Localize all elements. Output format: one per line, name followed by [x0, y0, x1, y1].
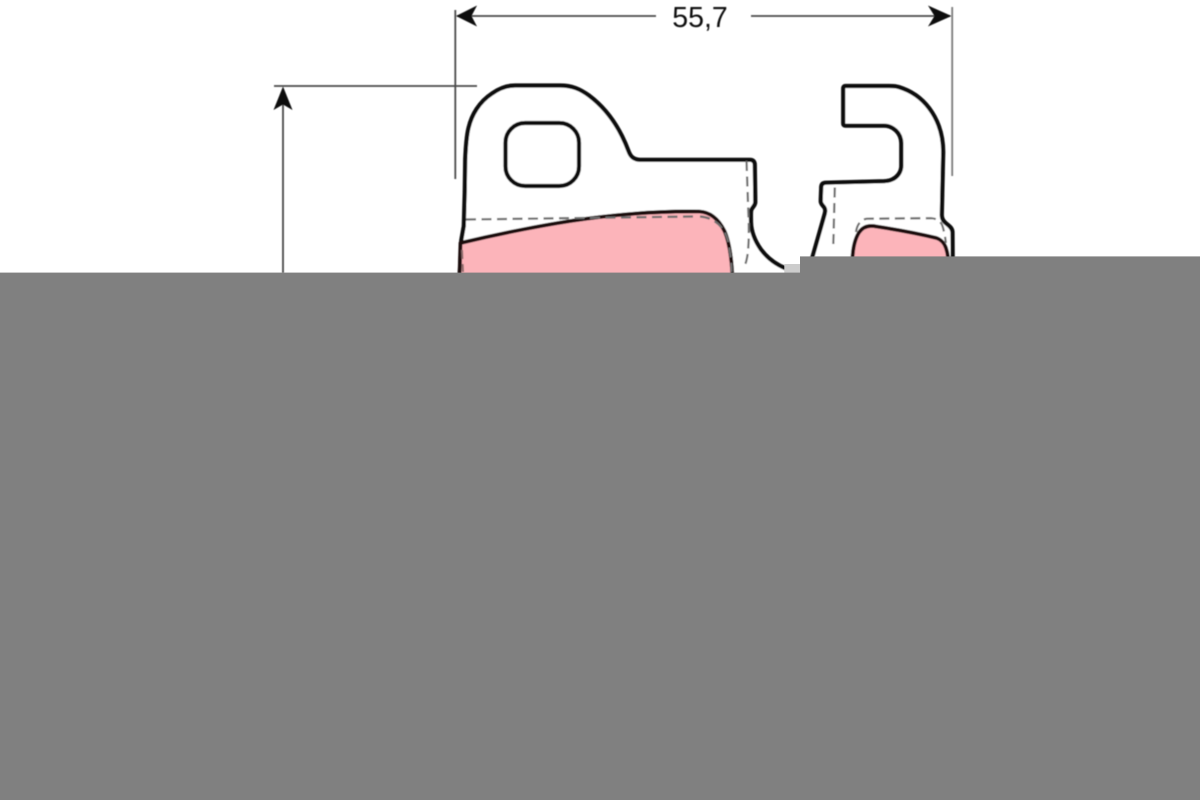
- svg-text:55,7: 55,7: [672, 2, 727, 34]
